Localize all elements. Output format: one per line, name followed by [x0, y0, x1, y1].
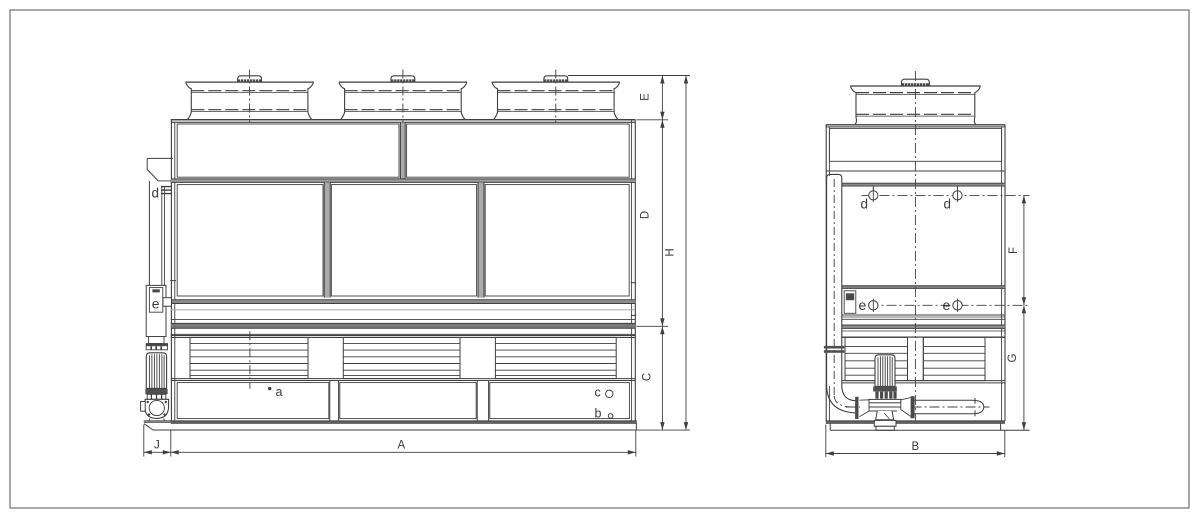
svg-text:b: b: [595, 407, 602, 421]
svg-text:e: e: [859, 297, 867, 313]
svg-text:F: F: [1008, 247, 1020, 254]
svg-text:E: E: [640, 93, 652, 101]
svg-text:e: e: [152, 296, 160, 312]
svg-text:e: e: [943, 297, 951, 313]
svg-text:a: a: [276, 385, 283, 399]
svg-text:J: J: [154, 440, 160, 452]
svg-text:H: H: [665, 248, 677, 256]
svg-text:C: C: [642, 373, 654, 381]
svg-text:d: d: [944, 197, 952, 212]
svg-text:c: c: [595, 386, 601, 400]
svg-text:D: D: [640, 211, 652, 219]
svg-text:G: G: [1007, 353, 1019, 362]
svg-text:A: A: [398, 440, 406, 452]
svg-text:B: B: [912, 441, 920, 453]
svg-text:d: d: [152, 186, 160, 201]
svg-text:d: d: [861, 197, 869, 212]
